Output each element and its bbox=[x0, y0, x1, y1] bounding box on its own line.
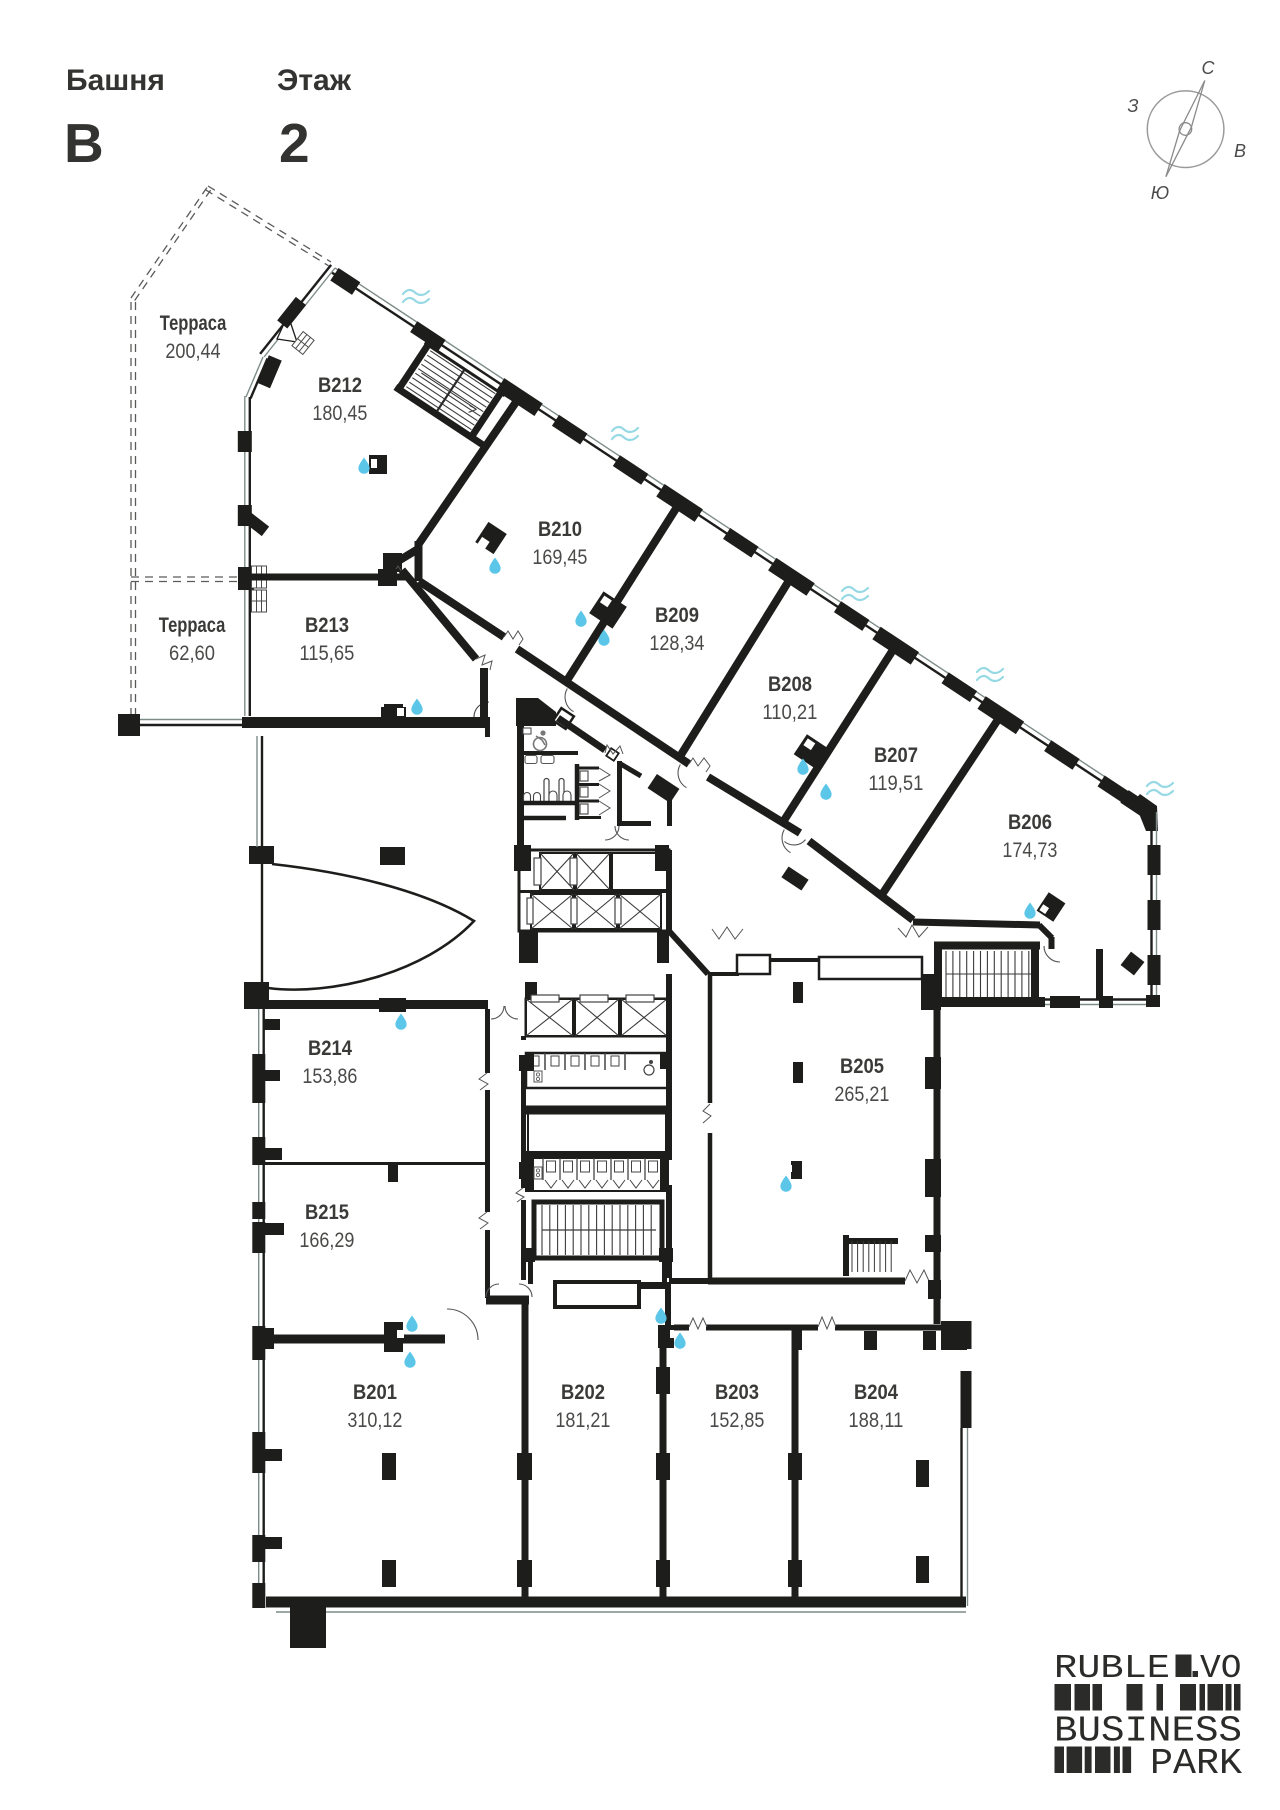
svg-text:174,73: 174,73 bbox=[1002, 839, 1057, 862]
svg-text:152,85: 152,85 bbox=[709, 1409, 764, 1432]
svg-text:В214: В214 bbox=[308, 1036, 352, 1060]
svg-text:В206: В206 bbox=[1008, 810, 1052, 834]
svg-text:166,29: 166,29 bbox=[299, 1229, 354, 1252]
svg-text:В208: В208 bbox=[768, 672, 812, 696]
svg-text:115,65: 115,65 bbox=[299, 642, 354, 665]
svg-text:153,86: 153,86 bbox=[302, 1065, 357, 1088]
svg-text:Башня: Башня bbox=[66, 64, 165, 97]
svg-text:Ю: Ю bbox=[1151, 183, 1169, 203]
svg-text:310,12: 310,12 bbox=[347, 1409, 402, 1432]
svg-text:PARK: PARK bbox=[1150, 1743, 1242, 1784]
svg-text:В209: В209 bbox=[655, 603, 699, 627]
svg-text:110,21: 110,21 bbox=[762, 701, 817, 724]
svg-text:180,45: 180,45 bbox=[312, 402, 367, 425]
svg-text:В212: В212 bbox=[318, 373, 362, 397]
svg-text:В: В bbox=[1234, 141, 1246, 161]
svg-text:З: З bbox=[1127, 96, 1138, 116]
svg-text:62,60: 62,60 bbox=[169, 642, 215, 665]
svg-text:2: 2 bbox=[279, 112, 310, 174]
svg-text:В207: В207 bbox=[874, 743, 918, 767]
svg-text:В: В bbox=[64, 112, 104, 174]
svg-text:RUBLE: RUBLE bbox=[1054, 1650, 1170, 1687]
svg-text:169,45: 169,45 bbox=[532, 546, 587, 569]
svg-text:С: С bbox=[1202, 58, 1216, 78]
svg-text:181,21: 181,21 bbox=[555, 1409, 610, 1432]
svg-text:В205: В205 bbox=[840, 1054, 884, 1078]
svg-text:В202: В202 bbox=[561, 1380, 605, 1404]
svg-text:В204: В204 bbox=[854, 1380, 898, 1404]
svg-text:Этаж: Этаж bbox=[277, 64, 352, 97]
svg-text:200,44: 200,44 bbox=[165, 340, 220, 363]
svg-text:В215: В215 bbox=[305, 1200, 349, 1224]
svg-text:В210: В210 bbox=[538, 517, 582, 541]
svg-text:128,34: 128,34 bbox=[649, 632, 704, 655]
svg-text:VO: VO bbox=[1200, 1650, 1242, 1687]
svg-text:119,51: 119,51 bbox=[868, 772, 923, 795]
svg-text:В203: В203 bbox=[715, 1380, 759, 1404]
svg-text:В213: В213 bbox=[305, 613, 349, 637]
svg-text:265,21: 265,21 bbox=[834, 1083, 889, 1106]
svg-text:В201: В201 bbox=[353, 1380, 397, 1404]
svg-text:Терраса: Терраса bbox=[160, 311, 227, 335]
svg-text:Терраса: Терраса bbox=[159, 613, 226, 637]
svg-text:188,11: 188,11 bbox=[848, 1409, 903, 1432]
